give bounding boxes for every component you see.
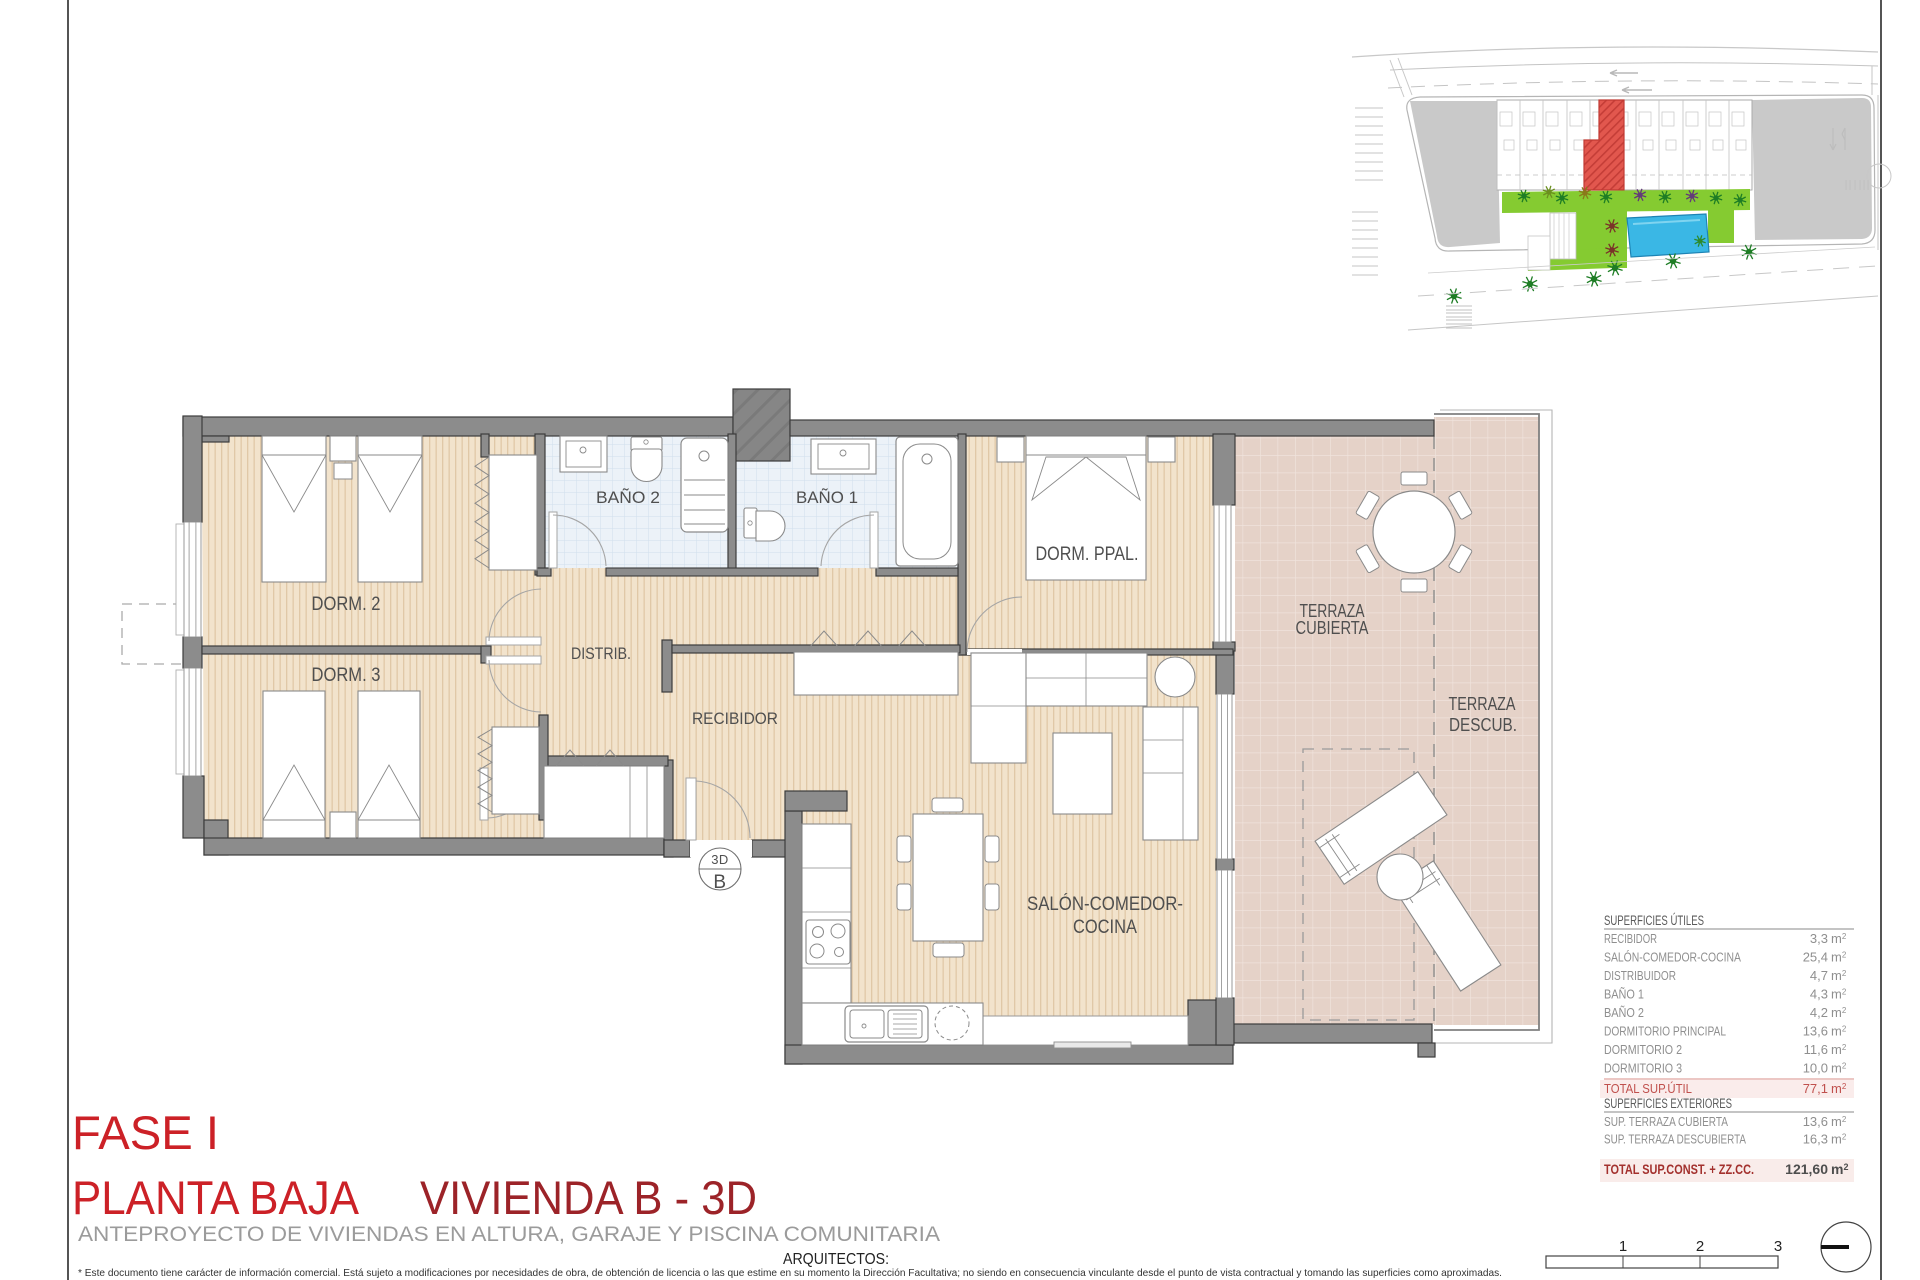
- svg-text:DORMITORIO 3: DORMITORIO 3: [1604, 1061, 1682, 1076]
- svg-text:BAÑO 1: BAÑO 1: [1604, 987, 1644, 1002]
- svg-text:BAÑO 1: BAÑO 1: [796, 488, 858, 507]
- svg-text:DORMITORIO 2: DORMITORIO 2: [1604, 1042, 1682, 1057]
- svg-text:VIVIENDA B - 3D: VIVIENDA B - 3D: [420, 1171, 757, 1224]
- svg-text:SALÓN-COMEDOR-COCINA: SALÓN-COMEDOR-COCINA: [1604, 950, 1741, 965]
- svg-text:DESCUB.: DESCUB.: [1449, 715, 1517, 735]
- svg-text:B: B: [713, 872, 726, 893]
- svg-text:3D: 3D: [711, 852, 729, 867]
- svg-text:4,2: 4,2: [1810, 1005, 1828, 1020]
- svg-text:4,3: 4,3: [1810, 987, 1828, 1002]
- svg-text:BAÑO 2: BAÑO 2: [1604, 1005, 1644, 1020]
- svg-text:DORM. 2: DORM. 2: [312, 594, 381, 615]
- svg-text:DISTRIBUIDOR: DISTRIBUIDOR: [1604, 968, 1676, 983]
- svg-text:* Este documento tiene carácte: * Este documento tiene carácter de infor…: [78, 1267, 1502, 1279]
- svg-text:SUP. TERRAZA DESCUBIERTA: SUP. TERRAZA DESCUBIERTA: [1604, 1132, 1746, 1147]
- svg-text:25,4: 25,4: [1803, 950, 1828, 965]
- svg-text:3,3: 3,3: [1810, 931, 1828, 946]
- svg-text:121,60: 121,60: [1785, 1161, 1828, 1177]
- svg-text:13,6: 13,6: [1803, 1024, 1828, 1039]
- svg-text:4,7: 4,7: [1810, 968, 1828, 983]
- svg-text:CUBIERTA: CUBIERTA: [1296, 618, 1369, 638]
- svg-text:11,6: 11,6: [1804, 1042, 1828, 1057]
- svg-text:DORMITORIO PRINCIPAL: DORMITORIO PRINCIPAL: [1604, 1024, 1726, 1039]
- svg-text:TOTAL SUP.CONST. + ZZ.CC.: TOTAL SUP.CONST. + ZZ.CC.: [1604, 1161, 1754, 1177]
- svg-text:13,6: 13,6: [1803, 1114, 1828, 1129]
- svg-text:SUPERFICIES ÚTILES: SUPERFICIES ÚTILES: [1604, 913, 1704, 928]
- svg-text:SALÓN-COMEDOR-: SALÓN-COMEDOR-: [1027, 893, 1183, 915]
- svg-text:2: 2: [1696, 1238, 1704, 1255]
- svg-text:PLANTA BAJA: PLANTA BAJA: [72, 1171, 360, 1224]
- svg-text:DISTRIB.: DISTRIB.: [571, 644, 631, 663]
- svg-text:16,3: 16,3: [1803, 1132, 1828, 1147]
- svg-text:DORM. 3: DORM. 3: [312, 665, 381, 686]
- svg-text:10,0: 10,0: [1803, 1061, 1828, 1076]
- svg-text:SUPERFICIES EXTERIORES: SUPERFICIES EXTERIORES: [1604, 1096, 1732, 1111]
- svg-text:COCINA: COCINA: [1073, 917, 1137, 938]
- svg-text:ARQUITECTOS:: ARQUITECTOS:: [783, 1251, 889, 1268]
- svg-text:ANTEPROYECTO DE VIVIENDAS EN A: ANTEPROYECTO DE VIVIENDAS EN ALTURA, GAR…: [78, 1223, 940, 1246]
- svg-text:SUP. TERRAZA CUBIERTA: SUP. TERRAZA CUBIERTA: [1604, 1114, 1728, 1129]
- svg-text:RECIBIDOR: RECIBIDOR: [692, 709, 778, 728]
- svg-text:77,1: 77,1: [1803, 1081, 1828, 1096]
- svg-text:TOTAL SUP.ÚTIL: TOTAL SUP.ÚTIL: [1604, 1081, 1692, 1096]
- svg-text:TERRAZA: TERRAZA: [1449, 694, 1516, 714]
- svg-text:RECIBIDOR: RECIBIDOR: [1604, 931, 1657, 946]
- svg-text:BAÑO 2: BAÑO 2: [596, 488, 660, 507]
- svg-text:DORM. PPAL.: DORM. PPAL.: [1036, 544, 1139, 565]
- svg-text:3: 3: [1774, 1238, 1782, 1255]
- svg-text:FASE I: FASE I: [72, 1106, 219, 1159]
- svg-text:1: 1: [1619, 1238, 1627, 1255]
